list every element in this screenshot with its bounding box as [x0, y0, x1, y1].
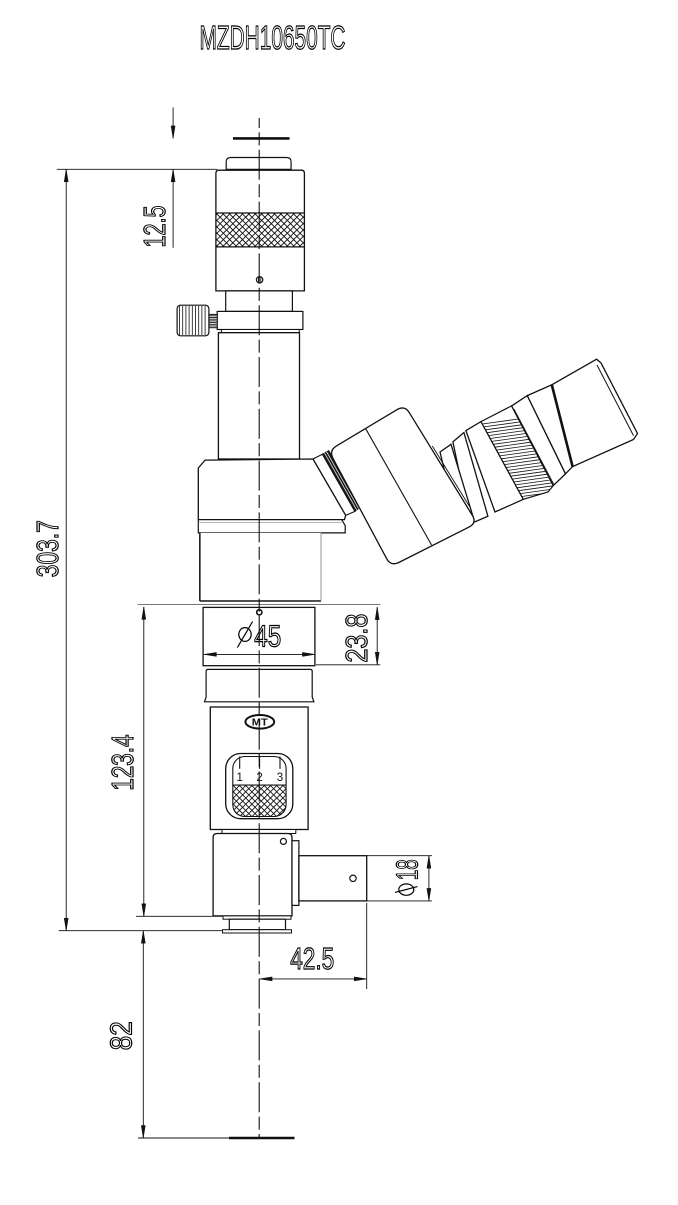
- svg-text:82: 82: [104, 1021, 139, 1050]
- svg-text:MZDH10650TC: MZDH10650TC: [200, 19, 346, 56]
- svg-text:303.7: 303.7: [30, 520, 65, 577]
- svg-text:45: 45: [254, 618, 281, 653]
- svg-text:23.8: 23.8: [339, 614, 374, 663]
- svg-text:1: 1: [236, 772, 242, 784]
- svg-text:123.4: 123.4: [105, 735, 140, 791]
- svg-text:42.5: 42.5: [290, 941, 334, 976]
- svg-text:3: 3: [277, 772, 283, 784]
- svg-text:18: 18: [390, 859, 425, 880]
- svg-text:MT: MT: [252, 717, 268, 728]
- svg-text:12.5: 12.5: [137, 206, 172, 248]
